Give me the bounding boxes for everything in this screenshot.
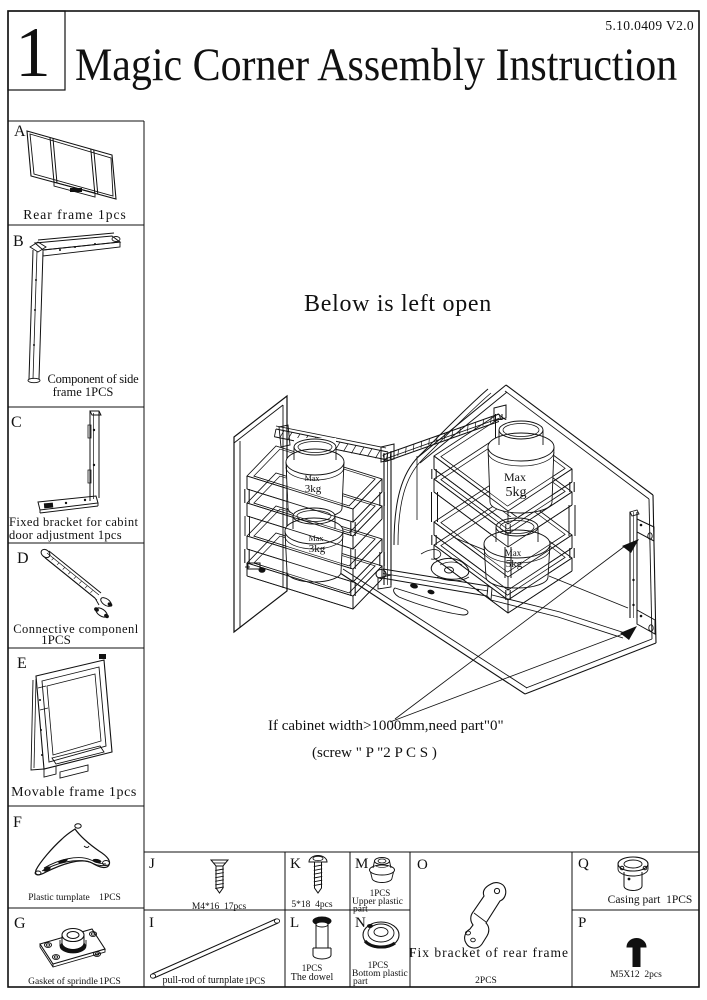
svg-text:Gasket of sprindle: Gasket of sprindle xyxy=(28,976,98,987)
svg-text:C: C xyxy=(11,414,22,431)
svg-text:Casing part 1PCS: Casing part 1PCS xyxy=(608,894,693,906)
svg-text:5.10.0409 V2.0: 5.10.0409 V2.0 xyxy=(605,18,694,33)
svg-text:Max: Max xyxy=(309,534,324,543)
svg-text:F: F xyxy=(13,814,22,831)
svg-text:J: J xyxy=(149,856,155,872)
svg-text:2PCS: 2PCS xyxy=(475,976,497,986)
svg-text:I: I xyxy=(149,915,154,931)
svg-text:Rear frame 1pcs: Rear frame 1pcs xyxy=(23,207,126,222)
svg-text:Plastic turnplate: Plastic turnplate xyxy=(28,893,89,903)
svg-text:M: M xyxy=(355,856,368,872)
svg-text:Fixed bracket for cabint: Fixed bracket for cabint xyxy=(9,515,138,529)
svg-text:1PCS: 1PCS xyxy=(41,632,71,647)
svg-text:Connective componenl: Connective componenl xyxy=(13,622,139,636)
svg-text:Below is left open: Below is left open xyxy=(304,291,492,317)
svg-text:3kg: 3kg xyxy=(305,483,322,495)
svg-text:Component of side: Component of side xyxy=(48,372,140,386)
svg-text:M4*16 17pcs: M4*16 17pcs xyxy=(192,902,247,912)
svg-text:K: K xyxy=(290,856,301,872)
svg-text:N: N xyxy=(355,915,366,931)
svg-text:pull-rod of turnplate: pull-rod of turnplate xyxy=(162,975,244,986)
svg-text:A: A xyxy=(14,123,26,140)
svg-text:5kg: 5kg xyxy=(506,485,527,500)
svg-text:B: B xyxy=(13,233,24,250)
svg-text:1PCS: 1PCS xyxy=(99,977,121,987)
svg-text:Max: Max xyxy=(505,548,522,558)
svg-text:L: L xyxy=(290,915,299,931)
svg-text:5*18 4pcs: 5*18 4pcs xyxy=(291,900,332,910)
svg-text:1PCS: 1PCS xyxy=(99,893,121,903)
svg-text:Movable frame 1pcs: Movable frame 1pcs xyxy=(11,785,137,800)
svg-text:Fix bracket of rear frame: Fix bracket of rear frame xyxy=(409,945,569,960)
svg-text:Q: Q xyxy=(578,856,589,872)
svg-text:E: E xyxy=(17,655,27,672)
svg-text:G: G xyxy=(14,915,26,932)
svg-text:(screw " P "2 P C S ): (screw " P "2 P C S ) xyxy=(312,745,437,761)
svg-text:The dowel: The dowel xyxy=(291,972,334,983)
svg-text:frame 1PCS: frame 1PCS xyxy=(53,385,114,399)
svg-text:1: 1 xyxy=(15,14,51,92)
svg-text:D: D xyxy=(17,550,29,567)
svg-text:O: O xyxy=(417,857,428,873)
svg-text:P: P xyxy=(578,915,586,931)
svg-text:If cabinet width>1000mm,need p: If cabinet width>1000mm,need part"0" xyxy=(268,718,504,734)
svg-text:Max: Max xyxy=(305,474,320,483)
svg-text:part: part xyxy=(353,977,368,987)
svg-text:M5X12 2pcs: M5X12 2pcs xyxy=(610,970,662,980)
svg-text:door adjustment 1pcs: door adjustment 1pcs xyxy=(9,528,122,542)
svg-text:1PCS: 1PCS xyxy=(245,976,266,986)
svg-text:3kg: 3kg xyxy=(309,543,326,555)
svg-text:part: part xyxy=(353,905,368,915)
svg-text:Max: Max xyxy=(504,470,526,484)
svg-text:Magic Corner Assembly Instruct: Magic Corner Assembly Instruction xyxy=(75,38,677,91)
